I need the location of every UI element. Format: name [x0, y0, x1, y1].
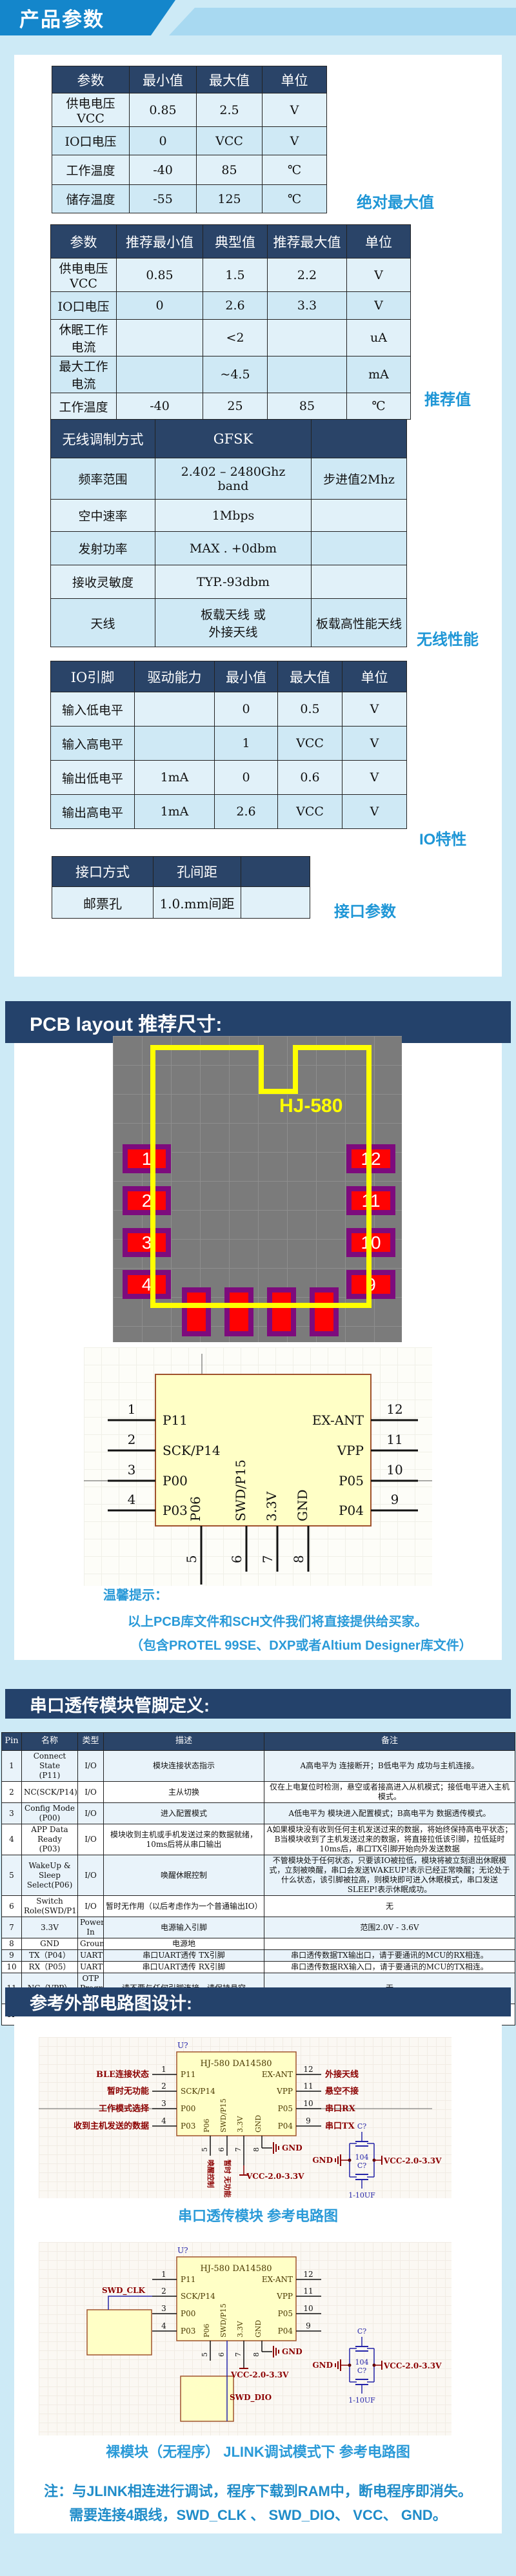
cell: Switch Role(SWD/P15): [22, 1896, 78, 1917]
col-header: Pin: [2, 1733, 22, 1751]
gnd-label: GND: [282, 2347, 303, 2356]
pin-row: 9 TX（P04） UART 串口UART透传 TX引脚 串口透传数据TX输出口…: [2, 1950, 515, 1962]
cell: 模块收到主机或手机发送过来的数据就绪，10ms后将从串口输出: [104, 1824, 264, 1855]
pin-number: 4: [161, 2116, 166, 2125]
cell: [241, 887, 310, 919]
pin-number: 9: [391, 1492, 399, 1507]
cell: 串口UART透传 RX引脚: [104, 1962, 264, 1973]
col-header: 最小值: [130, 66, 197, 93]
cell: 休眠工作 电流: [51, 320, 117, 356]
col-header: 接口方式: [52, 857, 154, 887]
cell: [135, 727, 215, 761]
pin-number: 1: [161, 2270, 166, 2279]
col-header: 最大值: [197, 66, 263, 93]
pin-number: 2: [161, 2287, 166, 2296]
top-banner: 产品参数: [0, 0, 516, 35]
cell: IO口电压: [51, 292, 117, 320]
pin-name: P11: [181, 2275, 195, 2284]
tips-block: 温馨提示： 以上PCB库文件和SCH文件我们将直接提供给买家。 （包含PROTE…: [103, 1585, 472, 1654]
pin-name: P00: [163, 1473, 188, 1488]
cap-ref: C?: [357, 2122, 366, 2131]
cell: 邮票孔: [52, 887, 154, 919]
swd-dio-label: SWD_DIO: [230, 2393, 272, 2403]
cell: 2.6: [215, 795, 278, 829]
cell: Connect State (P11): [22, 1751, 78, 1782]
cell: 0: [215, 692, 278, 727]
cell: 2.5: [197, 93, 263, 127]
tips-title: 温馨提示：: [103, 1585, 472, 1603]
pin-number: 3: [128, 1462, 136, 1478]
cell: I/O: [78, 1782, 104, 1803]
net-label: 唤醒控制: [206, 2160, 215, 2188]
pin-number: 4: [161, 2321, 166, 2330]
external-block: [87, 2310, 152, 2355]
pin-row: 3 Config Mode (P00) I/O 进入配置模式 A低电平为 模块进…: [2, 1803, 515, 1824]
cell: 最大工作 电流: [51, 356, 117, 393]
col-header: 单位: [347, 225, 411, 259]
vcc-connection: VCC-2.0-3.3V: [230, 2368, 289, 2379]
pin-row: 4 APP Data Ready (P03) I/O 模块收到主机或手机发送过来…: [2, 1824, 515, 1855]
cell: V: [347, 259, 411, 292]
cap-value: 104: [355, 2153, 369, 2161]
pin-name: SWD/P15: [233, 1459, 248, 1521]
pin-row: 6 Switch Role(SWD/P15) I/O 暂时无作用（以后考虑作为一…: [2, 1896, 515, 1917]
pin-name: SWD/P15: [219, 2098, 228, 2132]
pin-name: P06: [188, 1496, 203, 1521]
cell: 储存温度: [52, 185, 130, 213]
cell: 0.5: [278, 692, 342, 727]
cell: 0.85: [130, 93, 197, 127]
pin-number: 10: [303, 2099, 313, 2108]
cell: 不管模块处于任何状态，只要该IO被拉低，模块将被立刻退出休眠模式，立刻被唤醒，串…: [264, 1855, 515, 1896]
pin-number: 3: [161, 2304, 166, 2313]
cell: 仅在上电复位时检测，悬空或者接高进入从机模式；接低电平进入主机模式。: [264, 1782, 515, 1803]
pin-row: 10 RX（P05） UART 串口UART透传 RX引脚 串口透传数据RX输入…: [2, 1962, 515, 1973]
cell: RX（P05）: [22, 1962, 78, 1973]
recommend-label: 推荐值: [424, 387, 471, 409]
cap-ref: C?: [357, 2161, 366, 2170]
pin-name: P11: [181, 2070, 195, 2079]
cell: 10: [2, 1962, 22, 1973]
pin-number: 1: [128, 1401, 136, 1417]
vcc-label: VCC-2.0-3.3V: [383, 2361, 442, 2370]
pin-number: 2: [128, 1432, 136, 1447]
swd-clk-net: SWD_CLK: [102, 2286, 152, 2310]
cell: 2: [2, 1782, 22, 1803]
pin-name: P04: [278, 2327, 293, 2336]
col-header: 典型值: [203, 225, 268, 259]
col-header: 无线调制方式: [51, 420, 155, 458]
net-label: 暂时无功能: [107, 2086, 149, 2096]
net-label: 工作模式选择: [99, 2103, 150, 2114]
col-header: [312, 420, 407, 458]
cell: Power In: [78, 1917, 104, 1938]
cell: 3.3: [268, 292, 347, 320]
pin-name: GND: [254, 2320, 263, 2337]
pin-name: SCK/P14: [163, 1443, 221, 1458]
gnd-connection: GND: [262, 2346, 303, 2357]
cell: 输入高电平: [51, 727, 135, 761]
cell: [117, 356, 203, 393]
gnd-label: GND: [312, 2156, 333, 2165]
pin-number: 9: [306, 2321, 311, 2330]
pin-number: 1: [161, 2065, 166, 2074]
pin-row: 1 Connect State (P11) I/O 模块连接状态指示 A高电平为…: [2, 1751, 515, 1782]
pin-name: P04: [339, 1503, 364, 1518]
cell: 步进值2Mhz: [312, 458, 407, 500]
net-label: 悬空不接: [325, 2086, 359, 2096]
cell: 电源地: [104, 1938, 264, 1950]
net-label: 串口RX: [325, 2103, 356, 2114]
chip-ref: U?: [177, 2246, 188, 2255]
pin-name: P05: [339, 1473, 364, 1488]
cell: WakeUp & Sleep Select(P06): [22, 1855, 78, 1896]
cell: 发射功率: [51, 532, 155, 565]
cell: Config Mode (P00): [22, 1803, 78, 1824]
cell: IO口电压: [52, 127, 130, 155]
cell: 供电电压 VCC: [52, 93, 130, 127]
cell: 1mA: [135, 761, 215, 795]
cell: 0: [130, 127, 197, 155]
cell: 模块连接状态指示: [104, 1751, 264, 1782]
cell: 电源输入引脚: [104, 1917, 264, 1938]
cell: 2.6: [203, 292, 268, 320]
chip-title: HJ-580 DA14580: [200, 2264, 272, 2274]
cell: I/O: [78, 1896, 104, 1917]
cell: [264, 1938, 515, 1950]
net-label: 暂时 无功能: [223, 2160, 232, 2198]
cap-ref: C?: [357, 2327, 366, 2336]
cell: 暂时无作用（以后考虑作为一个普通输出IO）: [104, 1896, 264, 1917]
col-header: 名称: [22, 1733, 78, 1751]
pin-name: VPP: [337, 1443, 364, 1458]
cell: 0: [215, 761, 278, 795]
interface-label: 接口参数: [334, 899, 396, 921]
pin-name: SCK/P14: [181, 2087, 215, 2096]
cell: V: [342, 761, 407, 795]
pin-name: EX-ANT: [312, 1412, 364, 1428]
cell: UART: [78, 1950, 104, 1962]
chip-ref: U?: [177, 2041, 188, 2050]
pin-name: GND: [295, 1489, 310, 1521]
col-header: 备注: [264, 1733, 515, 1751]
pin-name: P00: [181, 2104, 195, 2113]
wireless-table: 无线调制方式 GFSK 频率范围 2.402 – 2480Ghz band 步进…: [50, 419, 407, 647]
cell: 8: [2, 1938, 22, 1950]
cell: 5: [2, 1855, 22, 1896]
cell: I/O: [78, 1751, 104, 1782]
cell: 1mA: [135, 795, 215, 829]
pin-name: P05: [278, 2309, 293, 2318]
cell: 无: [264, 1896, 515, 1917]
cell: I/O: [78, 1855, 104, 1896]
col-header: 参数: [52, 66, 130, 93]
abs-max-label: 绝对最大值: [357, 190, 434, 212]
banner-shape: 产品参数: [0, 0, 175, 35]
pin-name: P05: [278, 2104, 293, 2113]
cell: 输出低电平: [51, 761, 135, 795]
cell: 0: [117, 292, 203, 320]
module-outline: [153, 1048, 369, 1305]
pin-number: 12: [303, 2270, 313, 2279]
col-header: 描述: [104, 1733, 264, 1751]
cell: 主从切换: [104, 1782, 264, 1803]
pin-name: EX-ANT: [262, 2070, 293, 2079]
cap-value: 1-10UF: [348, 2396, 375, 2405]
pin-name: 3.3V: [264, 1491, 279, 1521]
pin-row: 5 WakeUp & Sleep Select(P06) I/O 唤醒休眠控制 …: [2, 1855, 515, 1896]
cell: 空中速率: [51, 500, 155, 532]
pin-number: 6: [217, 2352, 226, 2357]
cell: 3: [2, 1803, 22, 1824]
col-header: [241, 857, 310, 887]
cell: GND: [22, 1938, 78, 1950]
pin-name: P11: [163, 1412, 188, 1428]
tips-line1: 以上PCB库文件和SCH文件我们将直接提供给买家。: [128, 1611, 472, 1630]
chip-title: HJ-580 DA14580: [200, 2059, 272, 2069]
net-label: BLE连接状态: [96, 2069, 149, 2080]
pin-definition-table: Pin 名称 类型 描述 备注 1 Connect State (P11) I/…: [1, 1732, 515, 2025]
cell: 3.3V: [22, 1917, 78, 1938]
footer-note: 注：与JLINK相连进行调试，程序下载到RAM中，断电程序即消失。 需要连接4跟…: [0, 2479, 516, 2528]
page-title: 产品参数: [0, 3, 104, 32]
col-header: GFSK: [155, 420, 312, 458]
cell: [135, 692, 215, 727]
cap-ref: C?: [357, 2366, 366, 2375]
cell: -40: [117, 393, 203, 420]
cell: 工作温度: [51, 393, 117, 420]
cell: 串口透传数据TX输出口，请于要通讯的MCU的RX相连。: [264, 1950, 515, 1962]
cell: I/O: [78, 1824, 104, 1855]
cell: 接收灵敏度: [51, 565, 155, 599]
pin-name: P03: [163, 1503, 188, 1518]
pin-number: 7: [260, 1555, 275, 1563]
cell: 9: [2, 1950, 22, 1962]
cell: 串口透传数据RX输入口，请于要通讯的MCU的TX相连。: [264, 1962, 515, 1973]
cap-value: 104: [355, 2358, 369, 2366]
pin-number: 8: [252, 2147, 261, 2152]
tips-line2: （包含PROTEL 99SE、DXP或者Altium Designer库文件）: [130, 1635, 472, 1654]
cell: mA: [347, 356, 411, 393]
pin-name: VPP: [276, 2087, 293, 2096]
decoupling-capacitors: GND VCC-2.0-: [312, 2327, 442, 2405]
pin-number: 7: [234, 2147, 243, 2152]
pin-name: SWD/P15: [219, 2303, 228, 2337]
pin-name: GND: [254, 2115, 263, 2132]
pin-name: 3.3V: [236, 2321, 244, 2337]
cell: 85: [197, 155, 263, 185]
uart-reference-circuit: U? HJ-580 DA14580 1 P11 BLE连接状态 2 SCK/P1…: [39, 2037, 451, 2198]
cell: ~4.5: [203, 356, 268, 393]
pin-number: 6: [217, 2147, 226, 2152]
circuit2-caption: 裸模块（无程序） JLINK调试模式下 参考电路图: [0, 2441, 516, 2461]
interface-table: 接口方式 孔间距 邮票孔 1.0.mm间距: [52, 856, 310, 919]
jlink-reference-circuit: U? HJ-580 DA14580 1 P11 2 SCK/P14 3 P00 …: [39, 2242, 451, 2435]
cell: VCC: [197, 127, 263, 155]
cell: V: [263, 93, 327, 127]
pin-number: 5: [201, 2352, 209, 2357]
col-header: 推荐最大值: [268, 225, 347, 259]
circuit1-caption: 串口透传模块 参考电路图: [0, 2205, 516, 2225]
cell: V: [347, 292, 411, 320]
col-header: 单位: [342, 661, 407, 692]
pin-number: 8: [291, 1555, 306, 1563]
pinout-diagram: 1 P11 2 SCK/P14 3 P00 4 P03 12 EX-ANT 11…: [84, 1347, 432, 1586]
cell: UART: [78, 1962, 104, 1973]
cell: 供电电压 VCC: [51, 259, 117, 292]
pin-name: VPP: [276, 2292, 293, 2301]
pin-number: 6: [229, 1555, 244, 1563]
cell: 1Mbps: [155, 500, 312, 532]
cell: 频率范围: [51, 458, 155, 500]
cell: 进入配置模式: [104, 1803, 264, 1824]
section-title-text: 参考外部电路图设计:: [30, 1989, 192, 2015]
vcc-label: VCC-2.0-3.3V: [383, 2156, 442, 2165]
cell: NC(SCK/P14): [22, 1782, 78, 1803]
cell: 0.6: [278, 761, 342, 795]
cell: 6: [2, 1896, 22, 1917]
pin-number: 11: [386, 1432, 402, 1447]
cell: ℃: [347, 393, 411, 420]
cell: V: [342, 795, 407, 829]
product-parameter-page: 产品参数 参数 最小值 最大值 单位 供电电压 VCC 0.85 2.5 V I…: [0, 0, 516, 2576]
pin-name: SCK/P14: [181, 2292, 215, 2301]
section-title-pin-definition: 串口透传模块管脚定义:: [5, 1689, 511, 1719]
cell: VCC: [278, 727, 342, 761]
abs-max-table: 参数 最小值 最大值 单位 供电电压 VCC 0.85 2.5 V IO口电压 …: [52, 66, 327, 213]
pin-name: P03: [181, 2122, 195, 2131]
pin-number: 4: [128, 1492, 136, 1507]
cell: [268, 320, 347, 356]
cell: 25: [203, 393, 268, 420]
cell: V: [342, 692, 407, 727]
net-label: 串口TX: [325, 2121, 355, 2131]
cell: [312, 565, 407, 599]
cell: 0.85: [117, 259, 203, 292]
cell: A低电平为 模块进入配置模式；B高电平为 数据透传模式。: [264, 1803, 515, 1824]
cell: 输入低电平: [51, 692, 135, 727]
cell: 2.2: [268, 259, 347, 292]
cap-value: 1-10UF: [348, 2191, 375, 2198]
cell: -40: [130, 155, 197, 185]
col-header: 最大值: [278, 661, 342, 692]
cell: 范围2.0V - 3.6V: [264, 1917, 515, 1938]
cell: 7: [2, 1917, 22, 1938]
cell: V: [263, 127, 327, 155]
pin-number: 12: [303, 2065, 313, 2074]
cell: TYP.-93dbm: [155, 565, 312, 599]
cell: <2: [203, 320, 268, 356]
cell: 天线: [51, 599, 155, 647]
pin-number: 11: [303, 2082, 313, 2091]
cell: VCC: [278, 795, 342, 829]
vcc-connection: VCC-2.0-3.3V: [239, 2165, 304, 2181]
vcc-label: VCC-2.0-3.3V: [230, 2370, 289, 2379]
external-block: [181, 2376, 233, 2421]
pin-name: P04: [278, 2122, 293, 2131]
col-header: 单位: [263, 66, 327, 93]
pin-row: 2 NC(SCK/P14) I/O 主从切换 仅在上电复位时检测，悬空或者接高进…: [2, 1782, 515, 1803]
cell: 4: [2, 1824, 22, 1855]
cell: -55: [130, 185, 197, 213]
cell: 85: [268, 393, 347, 420]
col-header: 推荐最小值: [117, 225, 203, 259]
col-header: 孔间距: [154, 857, 241, 887]
recommend-table: 参数 推荐最小值 典型值 推荐最大值 单位 供电电压 VCC 0.85 1.5 …: [50, 224, 411, 420]
gnd-label: GND: [312, 2361, 333, 2370]
io-table: IO引脚 驱动能力 最小值 最大值 单位 输入低电平 0 0.5 V 输入高电平…: [50, 661, 407, 829]
pin-name: P00: [181, 2309, 195, 2318]
note-line2: 需要连接4跟线，SWD_CLK 、 SWD_DIO、 VCC、 GND。: [0, 2503, 516, 2527]
pin-name: 3.3V: [236, 2116, 244, 2132]
vcc-label: VCC-2.0-3.3V: [246, 2172, 304, 2181]
pin-name: P06: [203, 2119, 211, 2132]
cell: [117, 320, 203, 356]
wireless-label: 无线性能: [417, 627, 479, 649]
cell: 1.5: [203, 259, 268, 292]
cell: ℃: [263, 155, 327, 185]
cell: 唤醒休眠控制: [104, 1855, 264, 1896]
cell: 1.0.mm间距: [154, 887, 241, 919]
section-title-text: PCB layout 推荐尺寸:: [30, 1008, 222, 1037]
pcb-courtyard-outline: [113, 1036, 402, 1342]
pin-number: 8: [252, 2352, 261, 2357]
cell: I/O: [78, 1803, 104, 1824]
net-label: 外接天线: [324, 2069, 359, 2080]
pin-number: 10: [386, 1462, 402, 1478]
pin-number: 2: [161, 2082, 166, 2091]
pin-number: 9: [306, 2116, 311, 2125]
pin-row: 8 GND Ground 电源地: [2, 1938, 515, 1950]
cell: APP Data Ready (P03): [22, 1824, 78, 1855]
pin-number: 5: [184, 1555, 199, 1563]
gnd-connection: GND: [262, 2142, 303, 2154]
cell: 工作温度: [52, 155, 130, 185]
cell: 板载高性能天线: [312, 599, 407, 647]
pin-row: 7 3.3V Power In 电源输入引脚 范围2.0V - 3.6V: [2, 1917, 515, 1938]
pin-number: 11: [303, 2287, 313, 2296]
pin-name: P06: [203, 2324, 211, 2337]
cell: TX（P04）: [22, 1950, 78, 1962]
pin-number: 3: [161, 2099, 166, 2108]
cell: 输出高电平: [51, 795, 135, 829]
cell: [312, 500, 407, 532]
section-title-text: 串口透传模块管脚定义:: [30, 1692, 210, 1717]
col-header: 最小值: [215, 661, 278, 692]
cell: A高电平为 连接断开；B低电平为 成功与主机连接。: [264, 1751, 515, 1782]
pcb-footprint-figure: 1 2 3 4 12 11 10 9 HJ-580: [113, 1036, 402, 1342]
cell: uA: [347, 320, 411, 356]
cell: 1: [2, 1751, 22, 1782]
cell: A如果模块没有收到任何主机发送过来的数据，将始终保持高电平状态；B当模块收到了主…: [264, 1824, 515, 1855]
cell: ℃: [263, 185, 327, 213]
pin-number: 5: [201, 2147, 209, 2152]
cell: 125: [197, 185, 263, 213]
section-title-circuit: 参考外部电路图设计:: [5, 1987, 511, 2016]
net-label: 收到主机发送的数据: [74, 2121, 149, 2131]
cell: 串口UART透传 TX引脚: [104, 1950, 264, 1962]
swd-clk-label: SWD_CLK: [102, 2286, 146, 2296]
col-header: 类型: [78, 1733, 104, 1751]
cell: Ground: [78, 1938, 104, 1950]
cell: V: [342, 727, 407, 761]
cell: 2.402 – 2480Ghz band: [155, 458, 312, 500]
cell: 1: [215, 727, 278, 761]
pin-name: EX-ANT: [262, 2275, 293, 2284]
cell: [312, 532, 407, 565]
pin-number: 10: [303, 2304, 313, 2313]
pin-number: 7: [234, 2352, 243, 2357]
